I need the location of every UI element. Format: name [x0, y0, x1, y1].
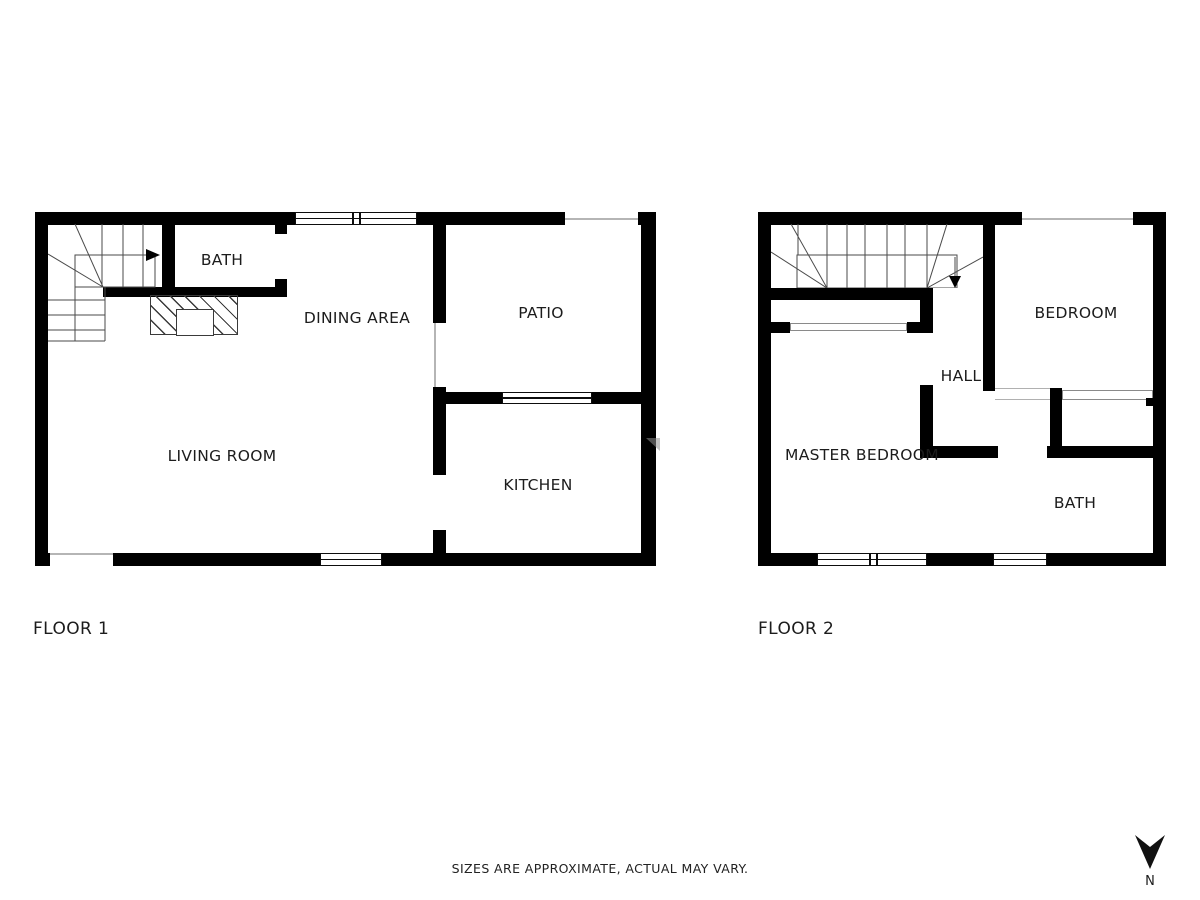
closet-sliding-doors — [1062, 390, 1153, 400]
north-arrow-icon — [1133, 831, 1167, 869]
compass: N — [1131, 831, 1169, 887]
double-window — [817, 553, 927, 566]
stair-direction-arrow-icon — [146, 249, 160, 261]
wall-segment — [771, 322, 790, 333]
floor1-title: FLOOR 1 — [33, 619, 109, 639]
wall-segment — [983, 224, 995, 391]
closet-sliding-doors — [790, 323, 907, 331]
floor2-plan: BEDROOM HALL MASTER BEDROOM BATH — [758, 212, 1166, 566]
window — [993, 553, 1047, 566]
wall-segment — [1047, 553, 1166, 566]
floor-plan-page: BATH DINING AREA PATIO LIVING ROOM KITCH… — [0, 0, 1200, 900]
wall-segment — [113, 553, 320, 566]
room-label-living-room: LIVING ROOM — [168, 447, 277, 465]
staircase-floor2 — [771, 224, 983, 288]
window — [320, 553, 382, 566]
opening-line — [1022, 218, 1133, 220]
wall-segment — [592, 392, 656, 404]
wall-segment — [1047, 446, 1153, 458]
wall-segment — [433, 530, 446, 566]
wall-segment — [641, 212, 656, 566]
room-label-bedroom: BEDROOM — [1034, 304, 1117, 322]
patio-opening-line — [565, 218, 638, 220]
bedroom-door-opening — [995, 388, 1050, 400]
wall-segment — [1153, 212, 1166, 566]
wall-segment — [446, 392, 502, 404]
wall-segment — [1050, 388, 1062, 458]
wall-segment — [758, 553, 817, 566]
room-label-bath-floor2: BATH — [1054, 494, 1096, 512]
fireplace — [150, 295, 238, 335]
north-label: N — [1131, 874, 1169, 889]
floor2-title: FLOOR 2 — [758, 619, 834, 639]
double-window — [295, 212, 417, 225]
window — [502, 392, 592, 404]
fireplace-firebox — [176, 309, 214, 336]
room-label-dining-area: DINING AREA — [304, 309, 410, 327]
staircase-floor1 — [48, 224, 162, 342]
wall-segment — [758, 212, 771, 566]
wall-segment — [433, 224, 446, 323]
wall-segment — [920, 288, 933, 333]
wall-segment — [35, 212, 48, 566]
wall-segment — [35, 553, 50, 566]
room-label-hall: HALL — [941, 367, 982, 385]
render-artifact — [646, 438, 660, 451]
floor1-plan: BATH DINING AREA PATIO LIVING ROOM KITCH… — [35, 212, 656, 566]
room-label-patio: PATIO — [518, 304, 564, 322]
room-label-master-bedroom: MASTER BEDROOM — [785, 446, 939, 464]
patio-door-line — [434, 323, 436, 387]
wall-segment — [927, 553, 993, 566]
wall-segment — [1146, 398, 1153, 406]
wall-segment — [275, 224, 287, 234]
wall-segment — [771, 288, 931, 300]
disclaimer-text: SIZES ARE APPROXIMATE, ACTUAL MAY VARY. — [452, 861, 749, 876]
wall-segment — [275, 279, 287, 287]
room-label-kitchen: KITCHEN — [503, 476, 572, 494]
entry-opening-line — [50, 553, 113, 555]
stair-direction-arrow-icon — [949, 276, 961, 288]
wall-segment — [382, 553, 656, 566]
wall-segment — [433, 387, 446, 475]
room-label-bath: BATH — [201, 251, 243, 269]
